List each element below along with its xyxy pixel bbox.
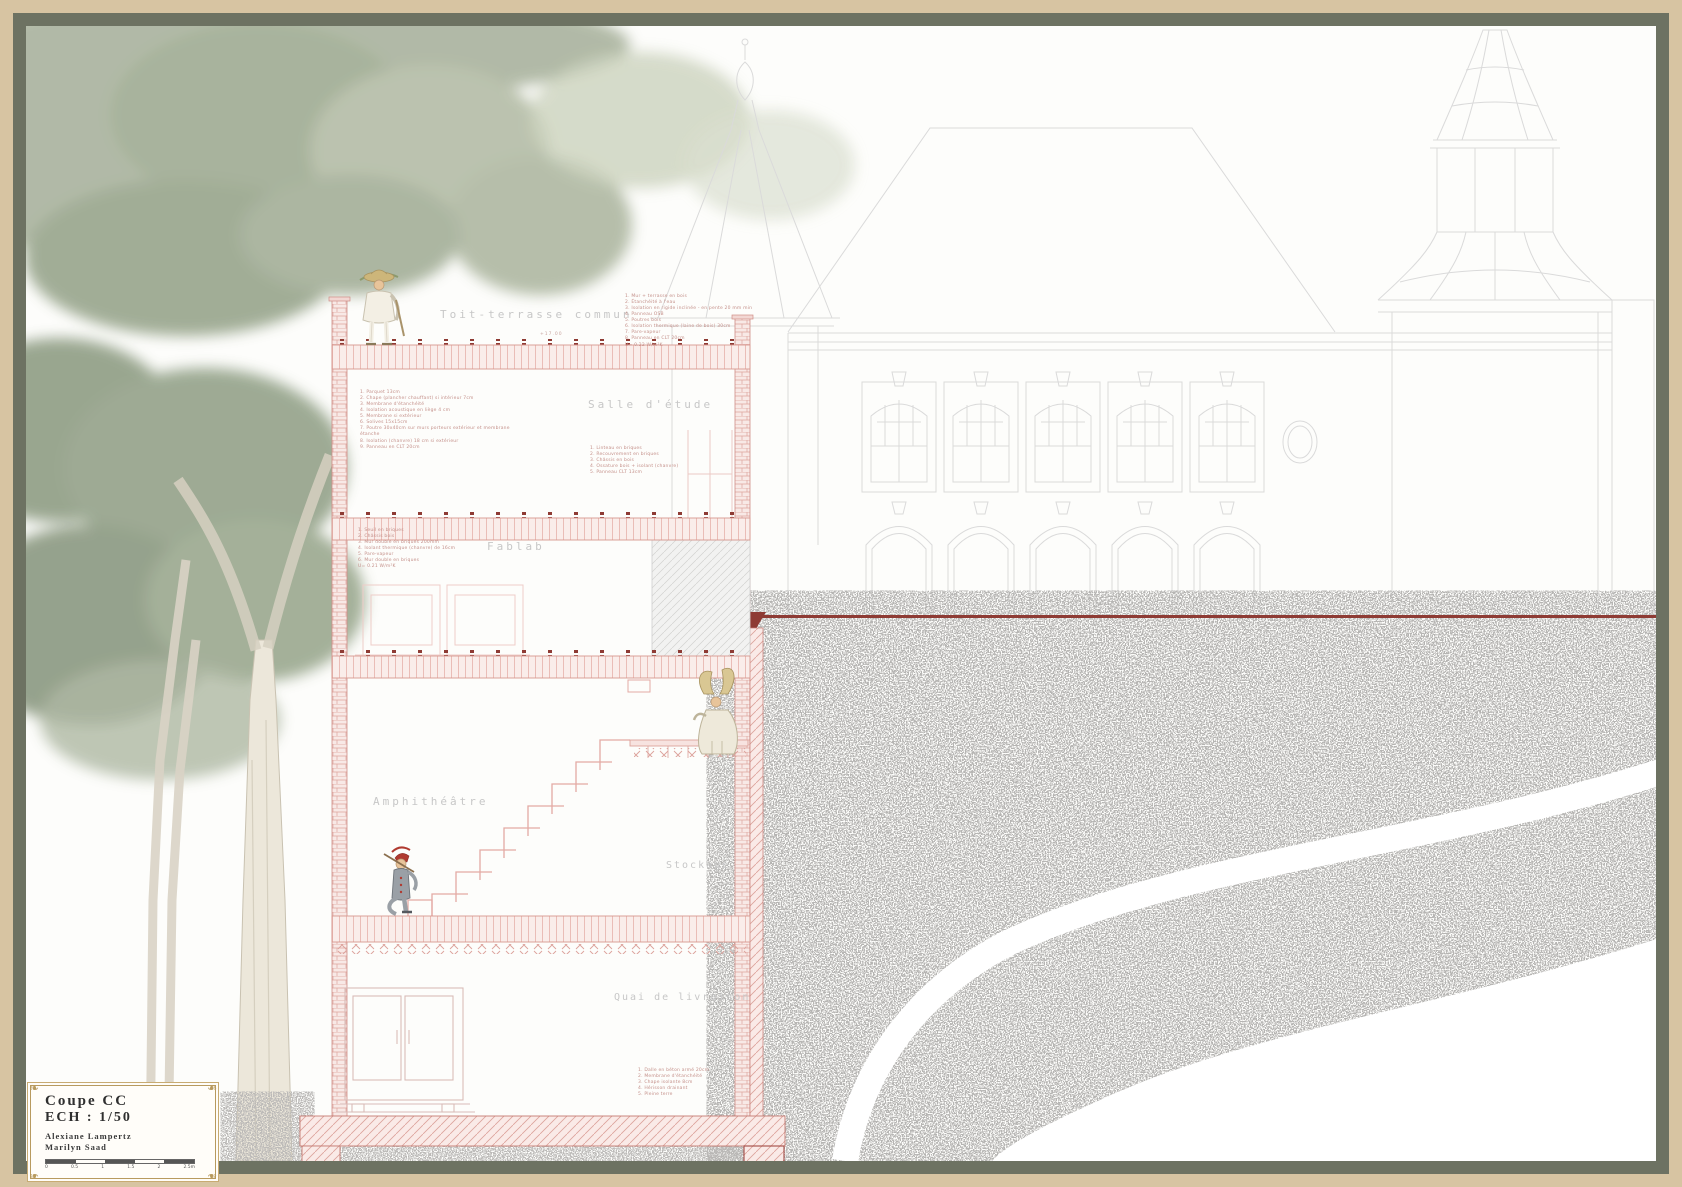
title-block: ❧ ❧ ❧ ❧ Coupe CC ECH : 1/50 Alexiane Lam…: [30, 1085, 216, 1179]
annotation-list-roof: 1. Mur + terrasse en bois 2. Étanchéité …: [625, 294, 757, 349]
chateau-upper-windows: [862, 372, 1317, 492]
quai-equipment: [336, 988, 475, 1112]
drawing-sheet: Toit-terrasse commun +17.00 Salle d'étud…: [0, 0, 1682, 1187]
roof-level-mark: +17.00: [540, 332, 563, 337]
harlequin-figure: [384, 847, 416, 914]
room-label-stockage: Stockage: [666, 860, 730, 871]
chateau-lower-arches: [866, 502, 1260, 618]
amphitheatre-steps: [408, 740, 630, 916]
ornament-corner-icon: ❧: [29, 1171, 39, 1181]
room-label-quai: Quai de livraison: [614, 992, 750, 1003]
right-wall-soil-layer: [750, 628, 763, 1120]
roof-slab: [332, 345, 750, 369]
slab-4: [332, 916, 750, 942]
angel-figure: [694, 668, 737, 754]
chateau-roof: [788, 128, 1612, 618]
annotation-list-fablab: 1. Seuil en briques 2. Châssis bois 3. M…: [358, 528, 508, 570]
scale-bar-segments: [45, 1159, 195, 1164]
section-drawing: [26, 26, 1656, 1161]
annotation-list-floor2: 1. Parquet 13cm 2. Chape (plancher chauf…: [360, 390, 510, 451]
ground-top-line: [748, 615, 1656, 618]
right-wall: [735, 318, 750, 1125]
ornament-corner-icon: ❧: [207, 1083, 217, 1093]
author-name-2: Marilyn Saad: [45, 1142, 205, 1153]
ground-stipple: [225, 612, 1656, 1161]
room-label-salle-etude: Salle d'étude: [588, 398, 713, 411]
room-label-amphitheatre: Amphithéâtre: [373, 795, 488, 808]
existing-wall-block: [652, 540, 750, 658]
scale-bar-labels: 0 0.5 1 1.5 2 2.5m: [45, 1165, 195, 1170]
annotation-list-salle: 1. Linteau en briques 2. Recouvrement en…: [590, 446, 740, 476]
ornament-corner-icon: ❧: [207, 1171, 217, 1181]
ornament-corner-icon: ❧: [29, 1083, 39, 1093]
room-label-toit-terrasse: Toit-terrasse commun: [440, 308, 632, 321]
annotation-list-quai: 1. Dalle en béton armé 20cm 2. Membrane …: [638, 1068, 748, 1098]
drawing-scale: ECH : 1/50: [45, 1110, 205, 1126]
slab-3: [332, 656, 750, 678]
scale-bar: 0 0.5 1 1.5 2 2.5m: [45, 1159, 195, 1170]
bell-tower: [1378, 30, 1654, 618]
author-name-1: Alexiane Lampertz: [45, 1131, 205, 1142]
drawing-title: Coupe CC: [45, 1093, 205, 1110]
fablab-furniture: [355, 585, 530, 655]
